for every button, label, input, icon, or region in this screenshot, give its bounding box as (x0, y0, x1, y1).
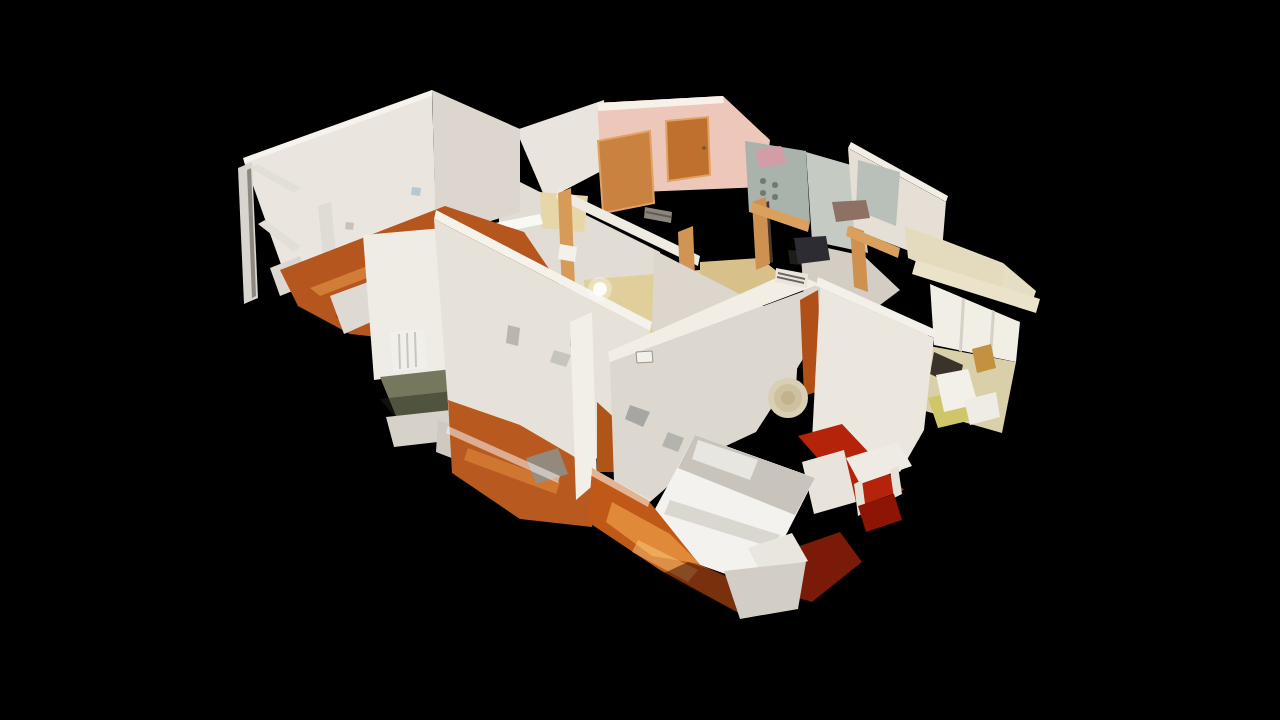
socket-1 (411, 187, 421, 196)
hall-door-2 (598, 131, 654, 213)
wicker-ball-core (781, 391, 795, 405)
socket-2 (345, 222, 354, 230)
shower-knob-1 (760, 178, 766, 184)
dollhouse-model (0, 0, 1280, 720)
door-knob (702, 146, 706, 150)
wall1-access-panel (558, 244, 577, 262)
shower-knob-4 (772, 194, 778, 200)
wall1-mark-1 (506, 325, 520, 346)
ceiling-light (593, 282, 607, 296)
hall-wall-top-left (516, 100, 607, 200)
viewer-stage (0, 0, 1280, 720)
shower-knob-3 (760, 190, 766, 196)
tour-viewer-canvas[interactable] (0, 0, 1280, 720)
wall2-socket (636, 351, 653, 363)
dark-tv-patch (794, 236, 830, 264)
shower-knob-2 (772, 182, 778, 188)
